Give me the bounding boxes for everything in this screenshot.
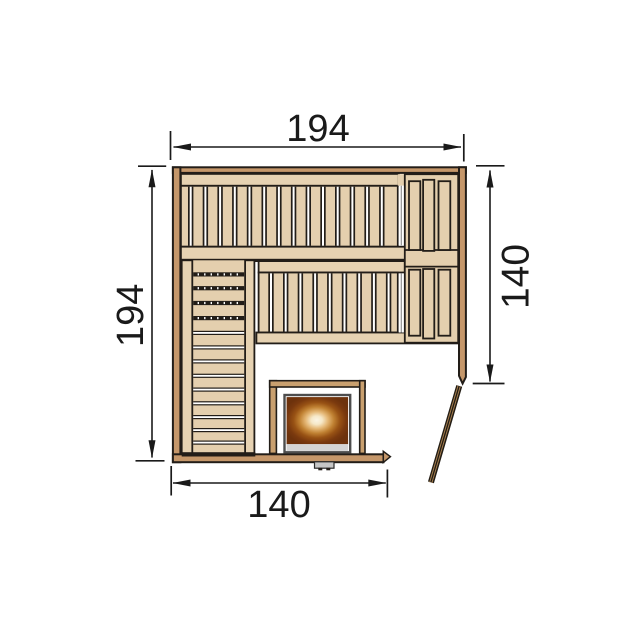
svg-text:140: 140	[247, 484, 310, 526]
svg-text:140: 140	[495, 244, 538, 309]
svg-text:194: 194	[286, 108, 349, 150]
svg-text:194: 194	[110, 284, 152, 347]
